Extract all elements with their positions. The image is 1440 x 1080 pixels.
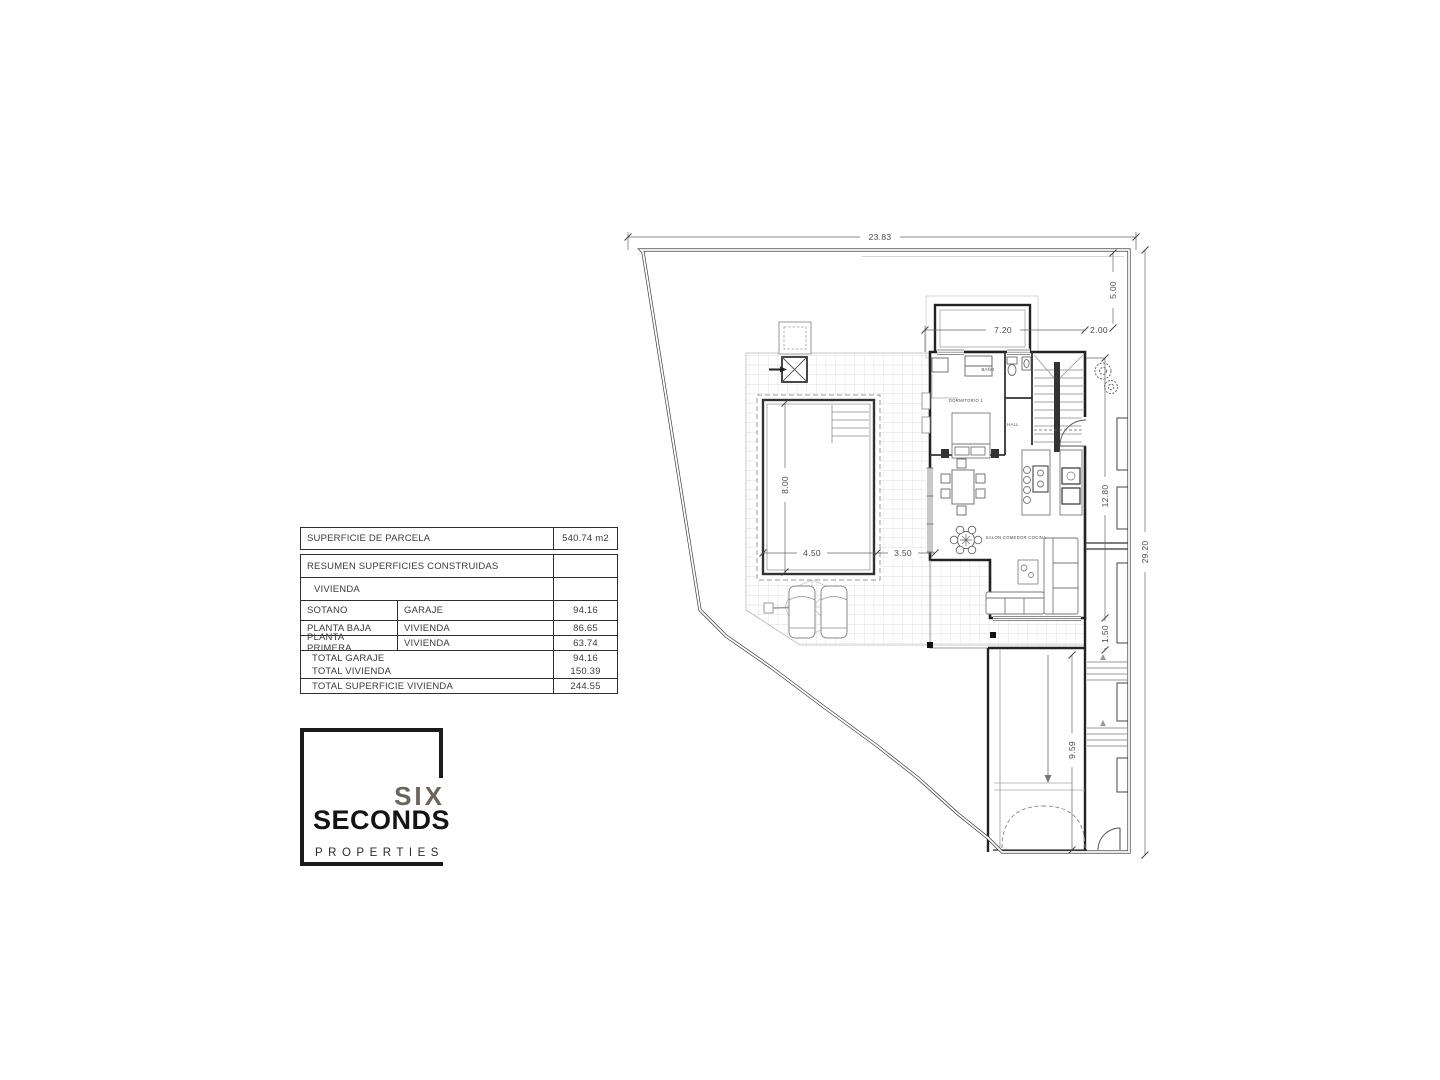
bushes xyxy=(1095,363,1118,394)
row-use: VIVIENDA xyxy=(397,636,553,650)
dim-house-width: 7.20 xyxy=(994,325,1012,335)
logo-word-properties: PROPERTIES xyxy=(315,847,444,859)
total-dwelling-value: 150.39 xyxy=(570,665,600,678)
window-north-bedroom xyxy=(937,349,964,356)
room-label-living: SALON COMEDOR COCINA xyxy=(986,535,1047,540)
total-garage-label: TOTAL GARAJE xyxy=(312,652,384,665)
grand-total-row: TOTAL SUPERFICIE VIVIENDA 244.55 xyxy=(301,678,617,693)
row-use: VIVIENDA xyxy=(397,621,553,635)
group-header-row: VIVIENDA xyxy=(301,577,617,600)
sink xyxy=(1022,357,1031,370)
grand-total-label: TOTAL SUPERFICIE VIVIENDA xyxy=(301,679,553,693)
dim-setback-right: 2.00 xyxy=(1090,325,1108,335)
row-floor: PLANTA PRIMERA xyxy=(301,636,397,650)
bed xyxy=(952,413,990,458)
table-row-sotano: SOTANO GARAJE 94.16 xyxy=(301,600,617,620)
pool-equipment-box xyxy=(779,322,811,354)
room-label-hall: HALL xyxy=(1007,422,1019,427)
total-dwelling-label: TOTAL VIVIENDA xyxy=(312,665,391,678)
room-label-bath: BAÑO xyxy=(981,367,995,372)
parcel-area-row: SUPERFICIE DE PARCELA 540.74 m2 xyxy=(300,527,618,550)
nightstand-right xyxy=(991,449,999,458)
dim-setback-top: 5.00 xyxy=(1108,281,1118,299)
boundary-wall-openings xyxy=(1117,418,1128,792)
link-wall xyxy=(1085,543,1128,549)
dim-pool-width: 4.50 xyxy=(803,548,821,558)
totals-labels: TOTAL GARAJE TOTAL VIVIENDA xyxy=(301,651,553,678)
summary-header-row: RESUMEN SUPERFICIES CONSTRUIDAS xyxy=(301,555,617,577)
dim-pool-to-house: 3.50 xyxy=(894,548,912,558)
group-header-label: VIVIENDA xyxy=(301,578,553,600)
porch-column-2 xyxy=(927,642,933,648)
pedestrian-gate xyxy=(1098,828,1120,850)
six-seconds-logo: SIX SECONDS PROPERTIES xyxy=(300,728,443,866)
row-use: GARAJE xyxy=(397,601,553,620)
parcel-area-label: SUPERFICIE DE PARCELA xyxy=(301,528,553,549)
row-floor: SOTANO xyxy=(301,601,397,620)
plan-sheet: SUPERFICIE DE PARCELA 540.74 m2 RESUMEN … xyxy=(0,0,1440,1080)
window-west-living xyxy=(927,468,934,552)
window-north-bath xyxy=(1007,349,1030,356)
parasol-base xyxy=(764,603,773,613)
room-label-bedroom: DORMITORIO 1 xyxy=(949,398,984,403)
dim-house-depth: 12.80 xyxy=(1100,485,1110,508)
nightstand-left xyxy=(941,449,949,458)
logo-frame-right-segment xyxy=(439,728,443,778)
built-areas-table: RESUMEN SUPERFICIES CONSTRUIDAS VIVIENDA… xyxy=(300,554,618,694)
dim-pool-length: 8.00 xyxy=(780,476,790,494)
area-summary-table: SUPERFICIE DE PARCELA 540.74 m2 RESUMEN … xyxy=(300,527,618,694)
dim-driveway-length: 9.59 xyxy=(1067,741,1077,759)
summary-header-label: RESUMEN SUPERFICIES CONSTRUIDAS xyxy=(301,555,553,577)
dim-plot-width: 23.83 xyxy=(869,232,892,242)
coffee-table xyxy=(1018,560,1038,584)
logo-word-seconds: SECONDS xyxy=(313,805,450,836)
porch-column xyxy=(990,632,996,638)
window-south-living xyxy=(993,615,1081,621)
total-garage-value: 94.16 xyxy=(573,652,598,665)
totals-row: TOTAL GARAJE TOTAL VIVIENDA 94.16 150.39 xyxy=(301,650,617,678)
table-row-planta-primera: PLANTA PRIMERA VIVIENDA 63.74 xyxy=(301,635,617,650)
dim-gap-south: 1.50 xyxy=(1100,625,1110,643)
floor-plan-svg: 23.83 5.00 7.20 2.00 12.80 1.50 29.20 9.… xyxy=(600,210,1180,890)
dim-plot-height: 29.20 xyxy=(1140,541,1150,564)
